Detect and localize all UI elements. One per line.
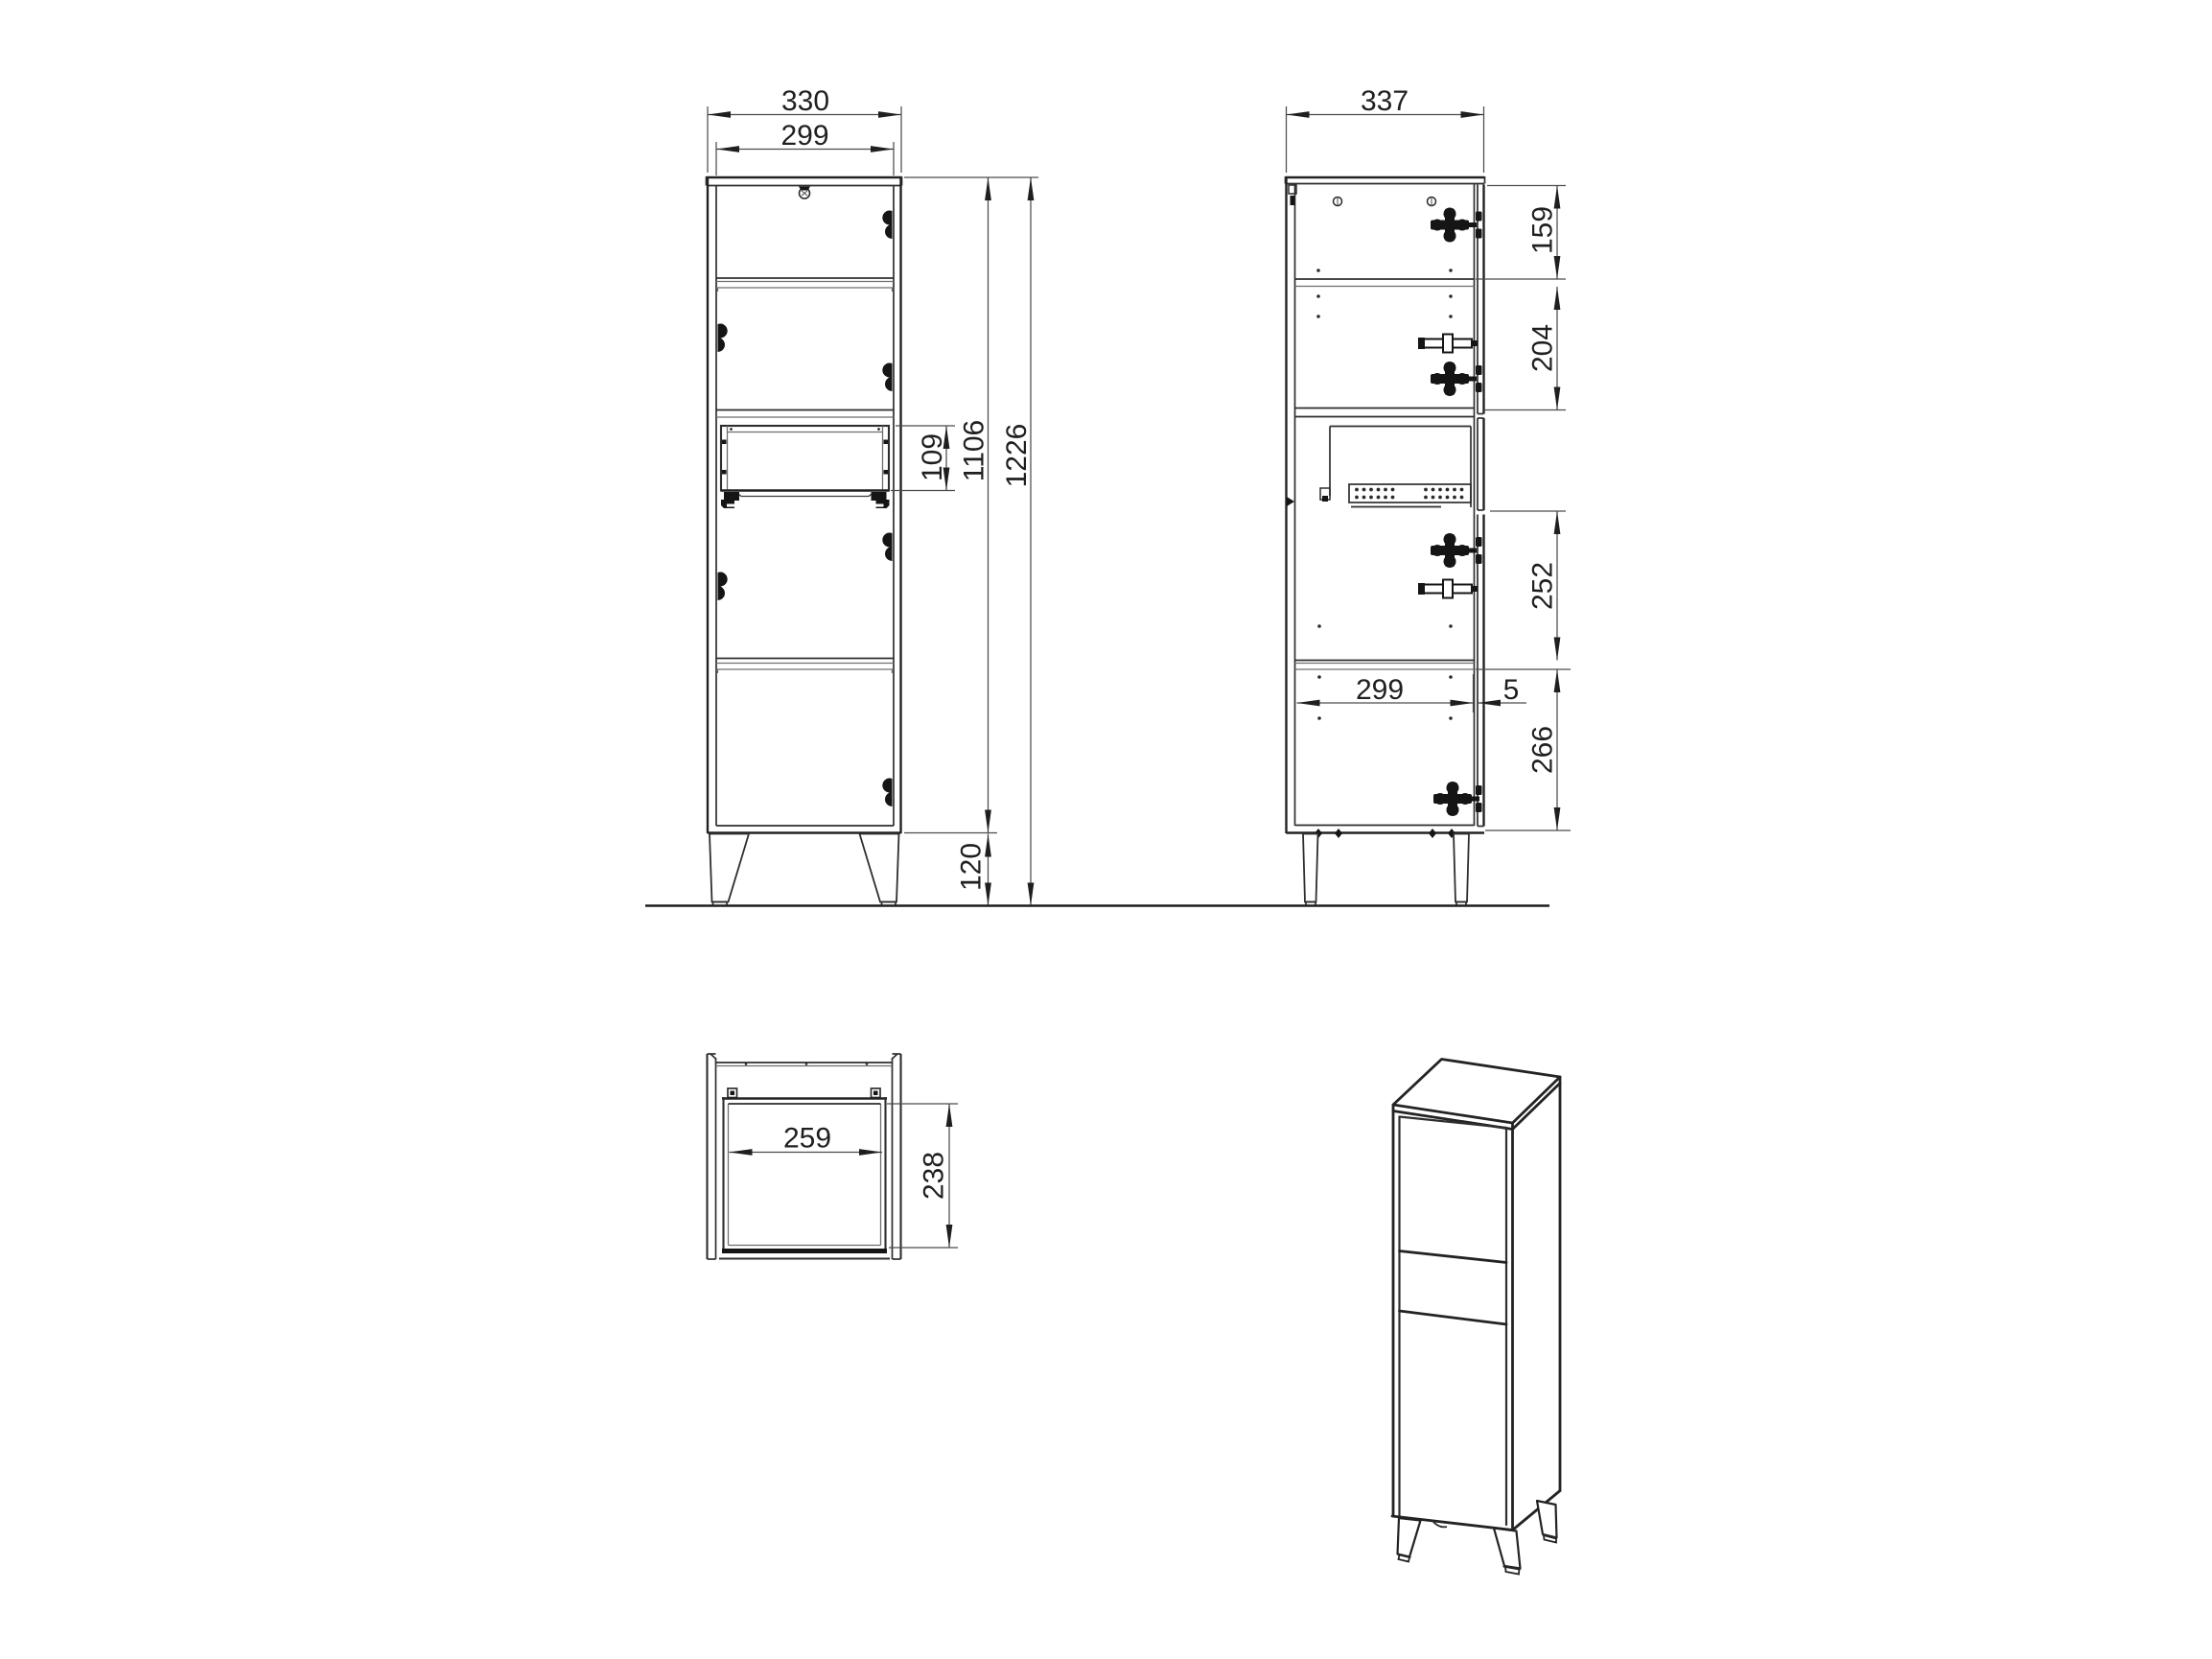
svg-text:299: 299	[780, 120, 828, 152]
svg-text:238: 238	[919, 1152, 950, 1200]
svg-text:337: 337	[1361, 85, 1409, 117]
svg-text:266: 266	[1527, 726, 1559, 774]
svg-text:330: 330	[781, 85, 829, 117]
svg-text:259: 259	[783, 1123, 831, 1155]
svg-text:1106: 1106	[959, 420, 990, 482]
svg-text:1226: 1226	[1001, 424, 1033, 488]
svg-text:120: 120	[956, 843, 988, 891]
svg-text:159: 159	[1527, 206, 1559, 254]
svg-text:109: 109	[917, 433, 948, 481]
svg-text:204: 204	[1527, 324, 1559, 372]
svg-text:299: 299	[1356, 674, 1404, 706]
svg-text:5: 5	[1503, 674, 1520, 706]
svg-text:252: 252	[1527, 562, 1559, 610]
